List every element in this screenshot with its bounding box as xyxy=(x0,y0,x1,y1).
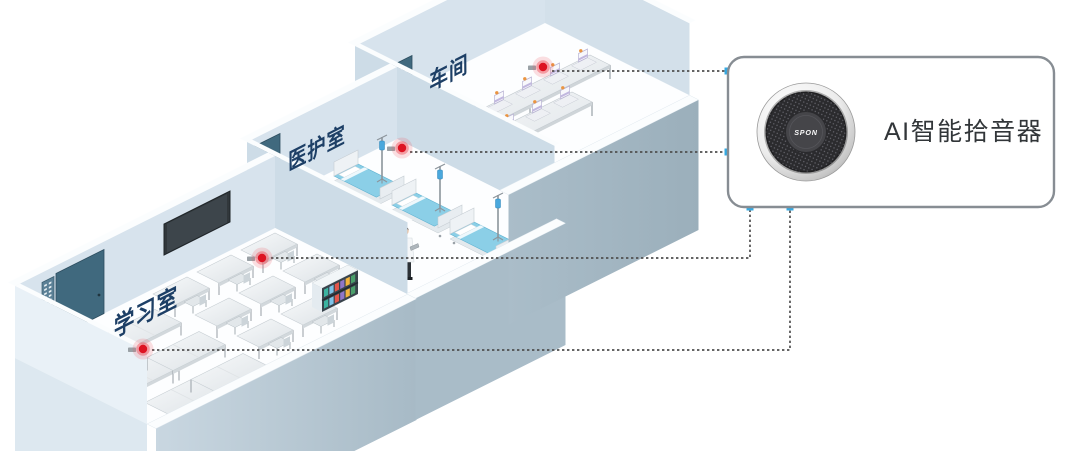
sensor-dot xyxy=(398,144,406,152)
study-door-handle xyxy=(98,294,101,297)
isometric-scene: 学习室医护室车间 SPON AI智能拾音器 xyxy=(0,0,1080,451)
sensor-dot xyxy=(539,63,547,71)
spon-logo-text: SPON xyxy=(794,128,818,137)
device-card: SPON AI智能拾音器 xyxy=(728,57,1054,207)
sensor-dot xyxy=(139,345,147,353)
floorplan-diagram: 学习室医护室车间 SPON AI智能拾音器 xyxy=(0,0,1080,451)
device-label: AI智能拾音器 xyxy=(884,118,1043,146)
building: 学习室医护室车间 xyxy=(8,0,699,451)
pickup-device-icon: SPON xyxy=(757,83,855,181)
sensor-dot xyxy=(258,254,266,262)
